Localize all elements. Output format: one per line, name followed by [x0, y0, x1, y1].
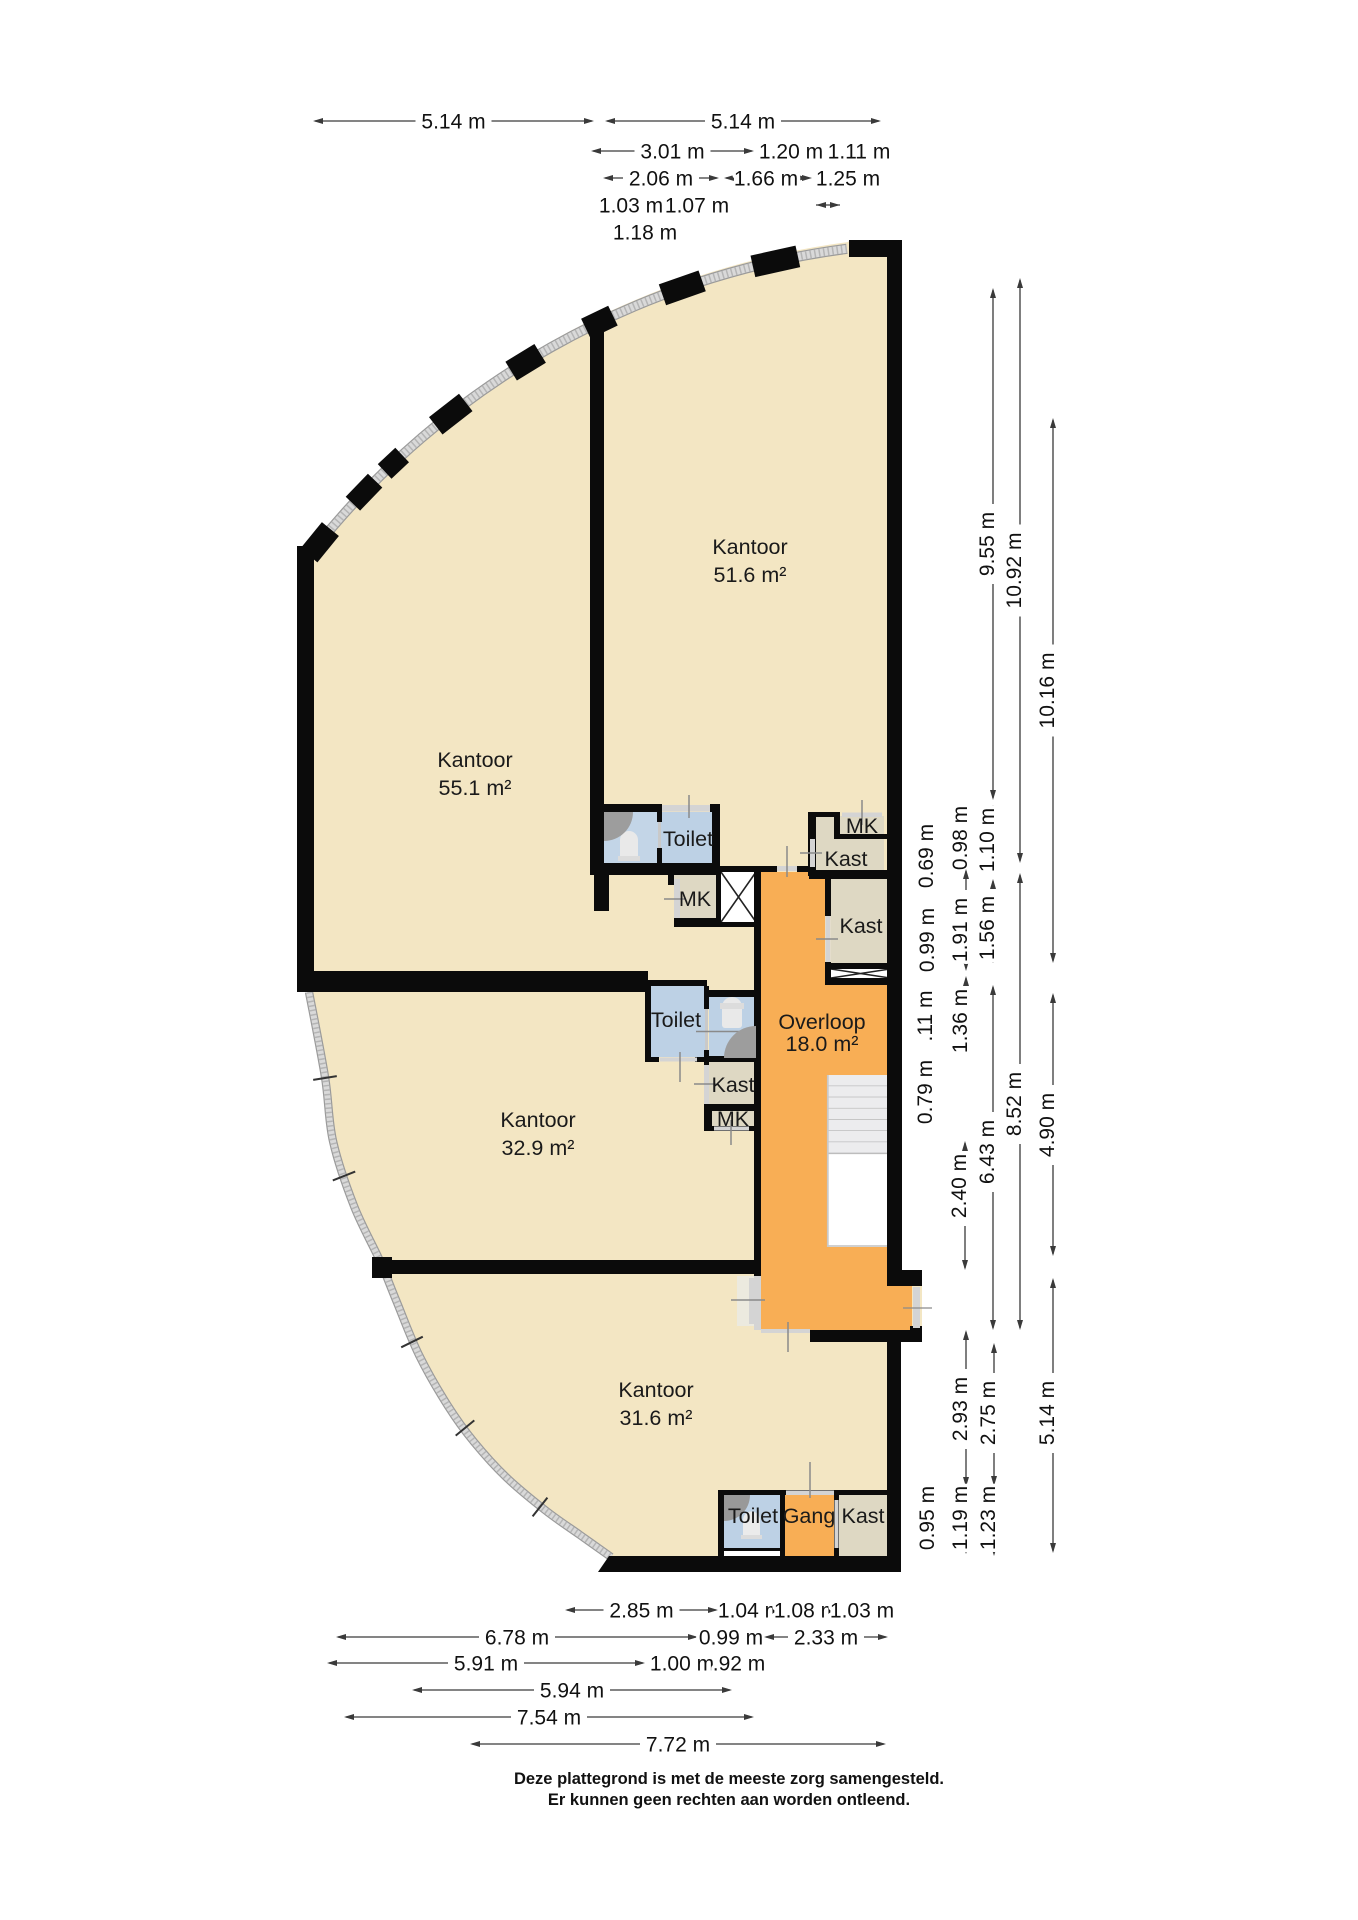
svg-text:MK: MK	[679, 887, 712, 911]
svg-text:1.19 m: 1.19 m	[949, 1486, 972, 1550]
svg-text:1.18 m: 1.18 m	[613, 222, 677, 245]
svg-text:1.66 m: 1.66 m	[734, 168, 798, 191]
svg-text:Kantoor: Kantoor	[437, 748, 512, 772]
svg-text:32.9 m²: 32.9 m²	[502, 1136, 575, 1160]
svg-text:5.94 m: 5.94 m	[540, 1680, 604, 1703]
svg-text:Kast: Kast	[841, 1504, 884, 1528]
svg-text:5.14 m: 5.14 m	[711, 111, 775, 134]
svg-text:2.40 m: 2.40 m	[948, 1154, 971, 1218]
svg-text:Gang: Gang	[783, 1504, 836, 1528]
svg-text:.11 m: .11 m	[914, 991, 937, 1042]
svg-text:1.00 m: 1.00 m	[650, 1653, 714, 1676]
svg-text:3.01 m: 3.01 m	[640, 141, 704, 164]
svg-text:0.98 m: 0.98 m	[949, 806, 972, 870]
svg-text:MK: MK	[717, 1107, 750, 1131]
svg-text:1.11 m: 1.11 m	[828, 141, 891, 164]
svg-text:0.99 m: 0.99 m	[916, 908, 939, 972]
svg-text:8.52 m: 8.52 m	[1003, 1072, 1026, 1136]
svg-text:Kantoor: Kantoor	[618, 1378, 693, 1402]
svg-text:18.0 m²: 18.0 m²	[786, 1032, 859, 1056]
svg-text:7.72 m: 7.72 m	[646, 1734, 710, 1757]
svg-text:10.16 m: 10.16 m	[1036, 653, 1059, 729]
svg-text:Er kunnen geen rechten aan wor: Er kunnen geen rechten aan worden ontlee…	[548, 1791, 910, 1809]
svg-text:Kast: Kast	[839, 914, 882, 938]
svg-text:5.14 m: 5.14 m	[1036, 1381, 1059, 1445]
svg-text:1.20 m: 1.20 m	[759, 141, 823, 164]
svg-text:0.69 m: 0.69 m	[915, 824, 938, 888]
svg-text:6.78 m: 6.78 m	[485, 1627, 549, 1650]
svg-text:1.10 m: 1.10 m	[976, 808, 999, 872]
svg-text:9.55 m: 9.55 m	[976, 512, 999, 576]
svg-text:5.91 m: 5.91 m	[454, 1653, 518, 1676]
svg-text:5.14 m: 5.14 m	[421, 111, 485, 134]
svg-text:51.6 m²: 51.6 m²	[714, 563, 787, 587]
svg-text:Kantoor: Kantoor	[500, 1108, 575, 1132]
svg-text:1.36 m: 1.36 m	[949, 989, 972, 1053]
svg-text:Toilet: Toilet	[728, 1504, 778, 1528]
svg-text:.92 m: .92 m	[713, 1653, 766, 1676]
svg-text:2.75 m: 2.75 m	[977, 1381, 1000, 1445]
svg-text:1.25 m: 1.25 m	[816, 168, 880, 191]
svg-text:MK: MK	[846, 814, 879, 838]
svg-text:Deze plattegrond is met de mee: Deze plattegrond is met de meeste zorg s…	[514, 1770, 944, 1788]
svg-text:Kast: Kast	[711, 1073, 754, 1097]
svg-text:1.03 m: 1.03 m	[599, 195, 663, 218]
svg-text:1.08 m: 1.08 m	[774, 1600, 838, 1623]
svg-text:2.33 m: 2.33 m	[794, 1627, 858, 1650]
svg-text:7.54 m: 7.54 m	[517, 1707, 581, 1730]
svg-text:Kantoor: Kantoor	[712, 535, 787, 559]
svg-text:0.95 m: 0.95 m	[916, 1486, 939, 1550]
svg-text:1.07 m: 1.07 m	[665, 195, 729, 218]
svg-text:2.85 m: 2.85 m	[609, 1600, 673, 1623]
svg-text:2.06 m: 2.06 m	[629, 168, 693, 191]
svg-text:1.04 m: 1.04 m	[718, 1600, 782, 1623]
svg-text:55.1 m²: 55.1 m²	[439, 776, 512, 800]
svg-text:1.91 m: 1.91 m	[949, 898, 972, 962]
svg-text:Kast: Kast	[824, 847, 867, 871]
svg-text:4.90 m: 4.90 m	[1036, 1093, 1059, 1157]
svg-text:6.43 m: 6.43 m	[976, 1120, 999, 1184]
svg-text:Toilet: Toilet	[663, 827, 713, 851]
svg-text:2.93 m: 2.93 m	[949, 1377, 972, 1441]
svg-text:31.6 m²: 31.6 m²	[620, 1406, 693, 1430]
svg-text:1.03 m: 1.03 m	[830, 1600, 894, 1623]
svg-text:0.79 m: 0.79 m	[914, 1060, 937, 1124]
svg-text:1.56 m: 1.56 m	[976, 896, 999, 960]
svg-text:Overloop: Overloop	[778, 1010, 865, 1034]
svg-text:0.99 m: 0.99 m	[699, 1627, 763, 1650]
svg-text:Toilet: Toilet	[651, 1008, 701, 1032]
svg-text:1.23 m: 1.23 m	[977, 1486, 1000, 1550]
svg-text:10.92 m: 10.92 m	[1003, 533, 1026, 609]
